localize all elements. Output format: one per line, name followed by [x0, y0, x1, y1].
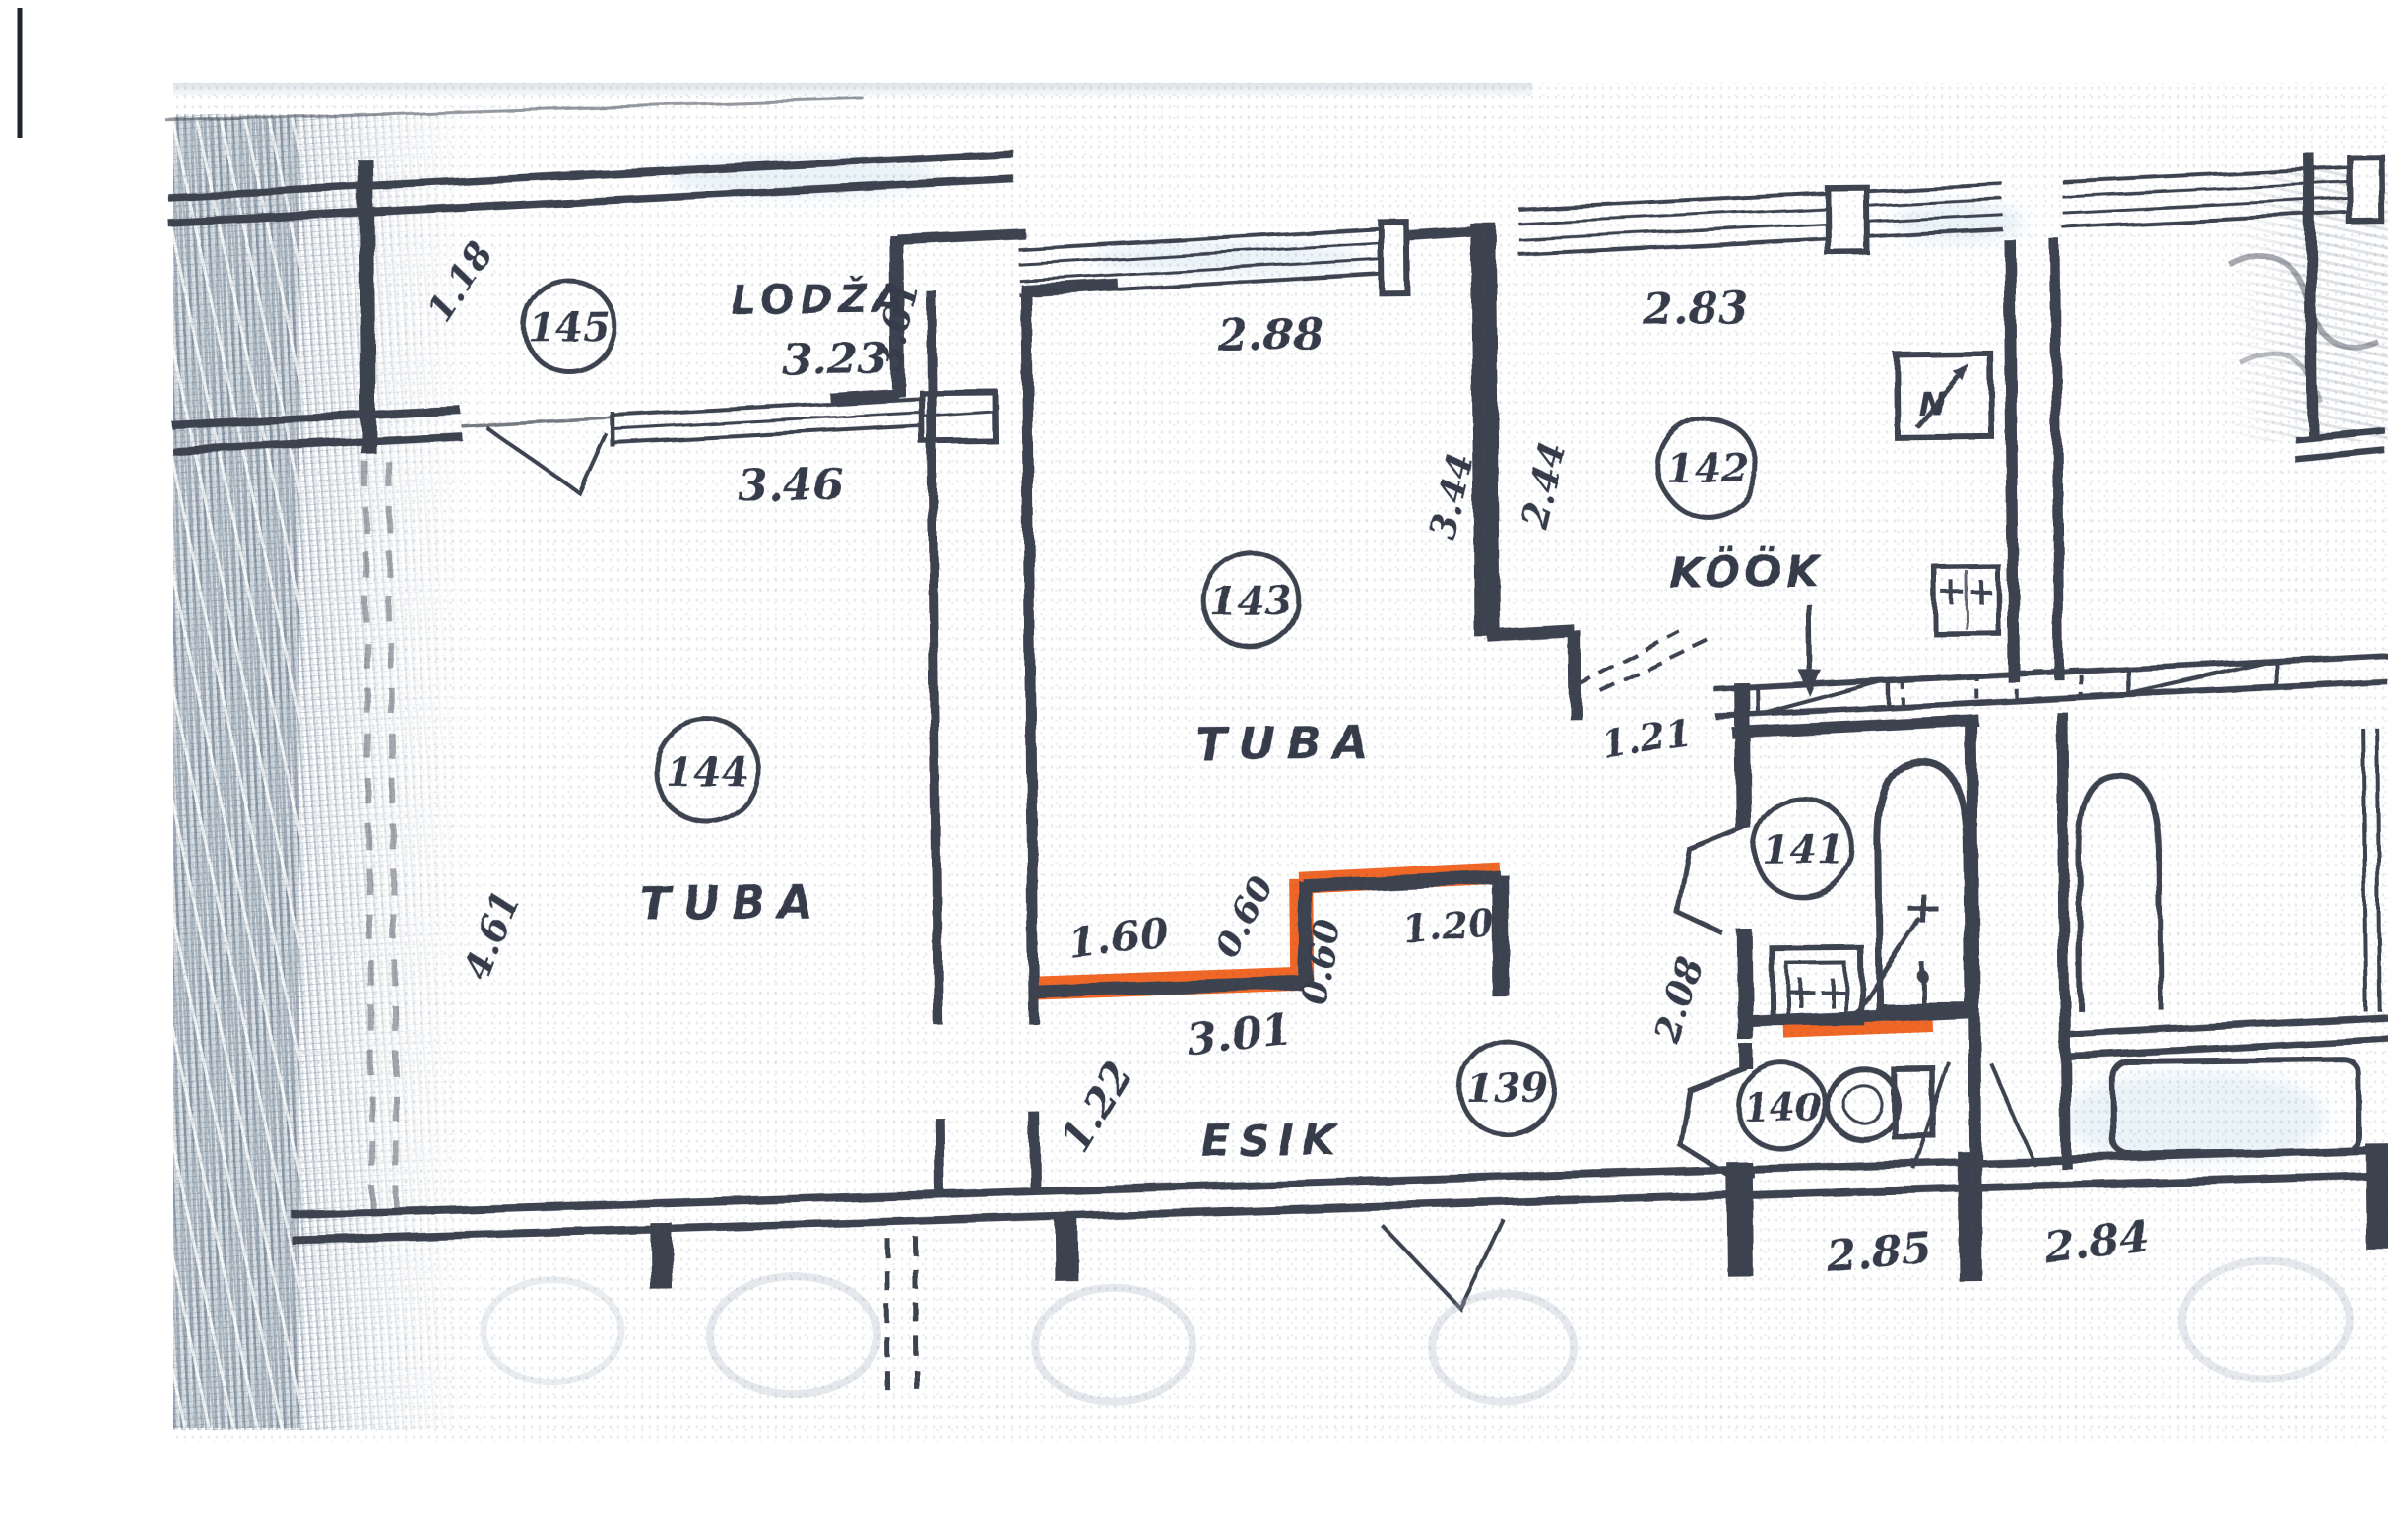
- wall-pier: [1381, 223, 1407, 293]
- wall-pier: [1739, 1162, 1740, 1276]
- wall-segment: [829, 394, 898, 399]
- wall-pier: [1969, 1152, 1970, 1282]
- room-label-tuba-144: TUBA: [639, 875, 824, 930]
- room-number-143: 143: [1209, 578, 1292, 625]
- wall-segment: [1742, 683, 1744, 829]
- room-label-esik: ESIK: [1201, 1115, 1344, 1167]
- dim-esik-width: 3.01: [1184, 1003, 1294, 1065]
- dim-kook-door: 1.21: [1598, 710, 1695, 766]
- dim-esik-b: 0.60: [1206, 868, 1283, 964]
- vent-shaft-icon: [1942, 581, 1964, 605]
- dim-lodza-depth: 1.18: [420, 234, 501, 329]
- wall-segment: [1026, 288, 1034, 1024]
- wall-pier: [1828, 188, 1868, 253]
- scan-smudge: [483, 1279, 621, 1382]
- door-threshold: [461, 417, 614, 426]
- scan-smudge: [1035, 1287, 1194, 1403]
- door-swing: [485, 425, 607, 493]
- dim-kook-width: 2.83: [1642, 284, 1749, 335]
- bathtub-icon: [2078, 776, 2161, 1011]
- wall-pier: [2377, 1143, 2378, 1250]
- wall-segment: [2065, 1039, 2388, 1056]
- wall-segment: [1488, 631, 1575, 636]
- dim-tuba144-depth: 4.61: [454, 884, 529, 986]
- wall-segment: [1732, 721, 1979, 734]
- wall-segment: [167, 179, 1014, 223]
- window-glyph: [2377, 728, 2380, 1011]
- tap-icon: [1907, 893, 1937, 923]
- vent-shaft-icon: [1971, 580, 1991, 604]
- wall-segment: [939, 1118, 940, 1196]
- window-glyph: [2062, 180, 2382, 196]
- wall-segment: [2295, 450, 2385, 459]
- dim-tuba143-width: 2.88: [1217, 309, 1324, 360]
- dim-centre-wall-right: 2.44: [1514, 438, 1574, 533]
- wall-segment: [365, 160, 368, 454]
- wall-segment: [1971, 723, 1976, 1172]
- wall-segment-highlighted: [1038, 983, 1302, 993]
- window-glyph: [1518, 229, 2003, 254]
- scan-smudge: [2230, 254, 2379, 349]
- window-glyph: [2062, 165, 2382, 181]
- wall-pier: [1066, 1212, 1067, 1281]
- scan-smudge: [1432, 1293, 1575, 1403]
- window-glyph: [2062, 211, 2382, 226]
- wall-segment: [2009, 239, 2014, 682]
- wall-segment: [1575, 631, 1576, 719]
- tap-icon: [1788, 978, 1814, 1007]
- wall-segment: [1406, 231, 1477, 236]
- room-number-144: 144: [666, 749, 748, 797]
- wall-segment: [2054, 239, 2059, 680]
- section-dash: [365, 462, 373, 1212]
- section-dash: [389, 461, 397, 1211]
- window-glyph: [1518, 184, 2003, 209]
- floor-plan-drawing: 145 144 143 142 141 140 139 LODŽA TUBA T…: [0, 0, 2388, 1540]
- scanned-floor-plan-page: 145 144 143 142 141 140 139 LODŽA TUBA T…: [0, 0, 2388, 1540]
- section-dash: [915, 1236, 917, 1403]
- window-glyph: [613, 426, 924, 443]
- fixture-rect: [2112, 1059, 2359, 1155]
- wall-segment: [171, 436, 461, 451]
- wall-segment: [1035, 1113, 1036, 1190]
- wall-segment: [2065, 1017, 2388, 1034]
- dim-esik-depth: 1.22: [1053, 1055, 1142, 1161]
- room-label-tuba-143: TUBA: [1195, 716, 1381, 771]
- wall-segment: [166, 98, 864, 120]
- window-glyph: [1518, 215, 2003, 239]
- toilet-icon: [1827, 1067, 1899, 1139]
- door-arrow-icon: [1809, 604, 1810, 680]
- section-dash: [887, 1238, 889, 1405]
- wall-pier: [661, 1223, 662, 1290]
- tap-icon: [1820, 978, 1845, 1007]
- dim-bath-depth: 2.08: [1646, 952, 1711, 1048]
- dim-bay-right: 2.84: [2040, 1211, 2152, 1273]
- tap-icon: [1917, 971, 1929, 983]
- room-number-141: 141: [1762, 826, 1844, 873]
- room-number-142: 142: [1666, 445, 1749, 492]
- window-glyph: [1518, 199, 2003, 224]
- wall-segment: [2061, 712, 2066, 1169]
- room-number-139: 139: [1465, 1064, 1548, 1112]
- room-number-145: 145: [528, 304, 611, 352]
- wall-segment: [896, 233, 1024, 239]
- scan-ghosts: [483, 1260, 2350, 1413]
- door-leaf: [1677, 827, 1745, 934]
- door-swing: [1600, 639, 1710, 690]
- window-glyph: [2062, 196, 2382, 212]
- wall-segment: [171, 411, 461, 425]
- scan-smudge: [709, 1275, 877, 1395]
- wall-segment: [1483, 224, 1487, 637]
- vent-shaft-icon: [1967, 571, 1968, 630]
- door-leaf: [1679, 1067, 1747, 1177]
- scan-smudge: [2181, 1260, 2350, 1380]
- dim-lodza-window: 3.46: [738, 461, 844, 512]
- dim-centre-wall-left: 3.44: [1421, 449, 1481, 543]
- window-glyph: [2363, 728, 2366, 1011]
- dim-bay-left: 2.85: [1824, 1223, 1934, 1282]
- dim-esik-d: 1.20: [1401, 900, 1496, 951]
- wall-segment: [1500, 875, 1501, 997]
- room-label-kook: KÖÖK: [1669, 545, 1824, 599]
- wall-pier: [2350, 157, 2383, 222]
- north-label: N: [1918, 385, 1947, 424]
- wall-segment-highlighted: [1303, 877, 1500, 886]
- door-swing: [1990, 1062, 2034, 1165]
- wall-segment: [167, 154, 1014, 197]
- dim-esik-a: 1.60: [1065, 908, 1171, 967]
- toilet-icon: [1843, 1085, 1881, 1123]
- room-number-140: 140: [1743, 1084, 1822, 1129]
